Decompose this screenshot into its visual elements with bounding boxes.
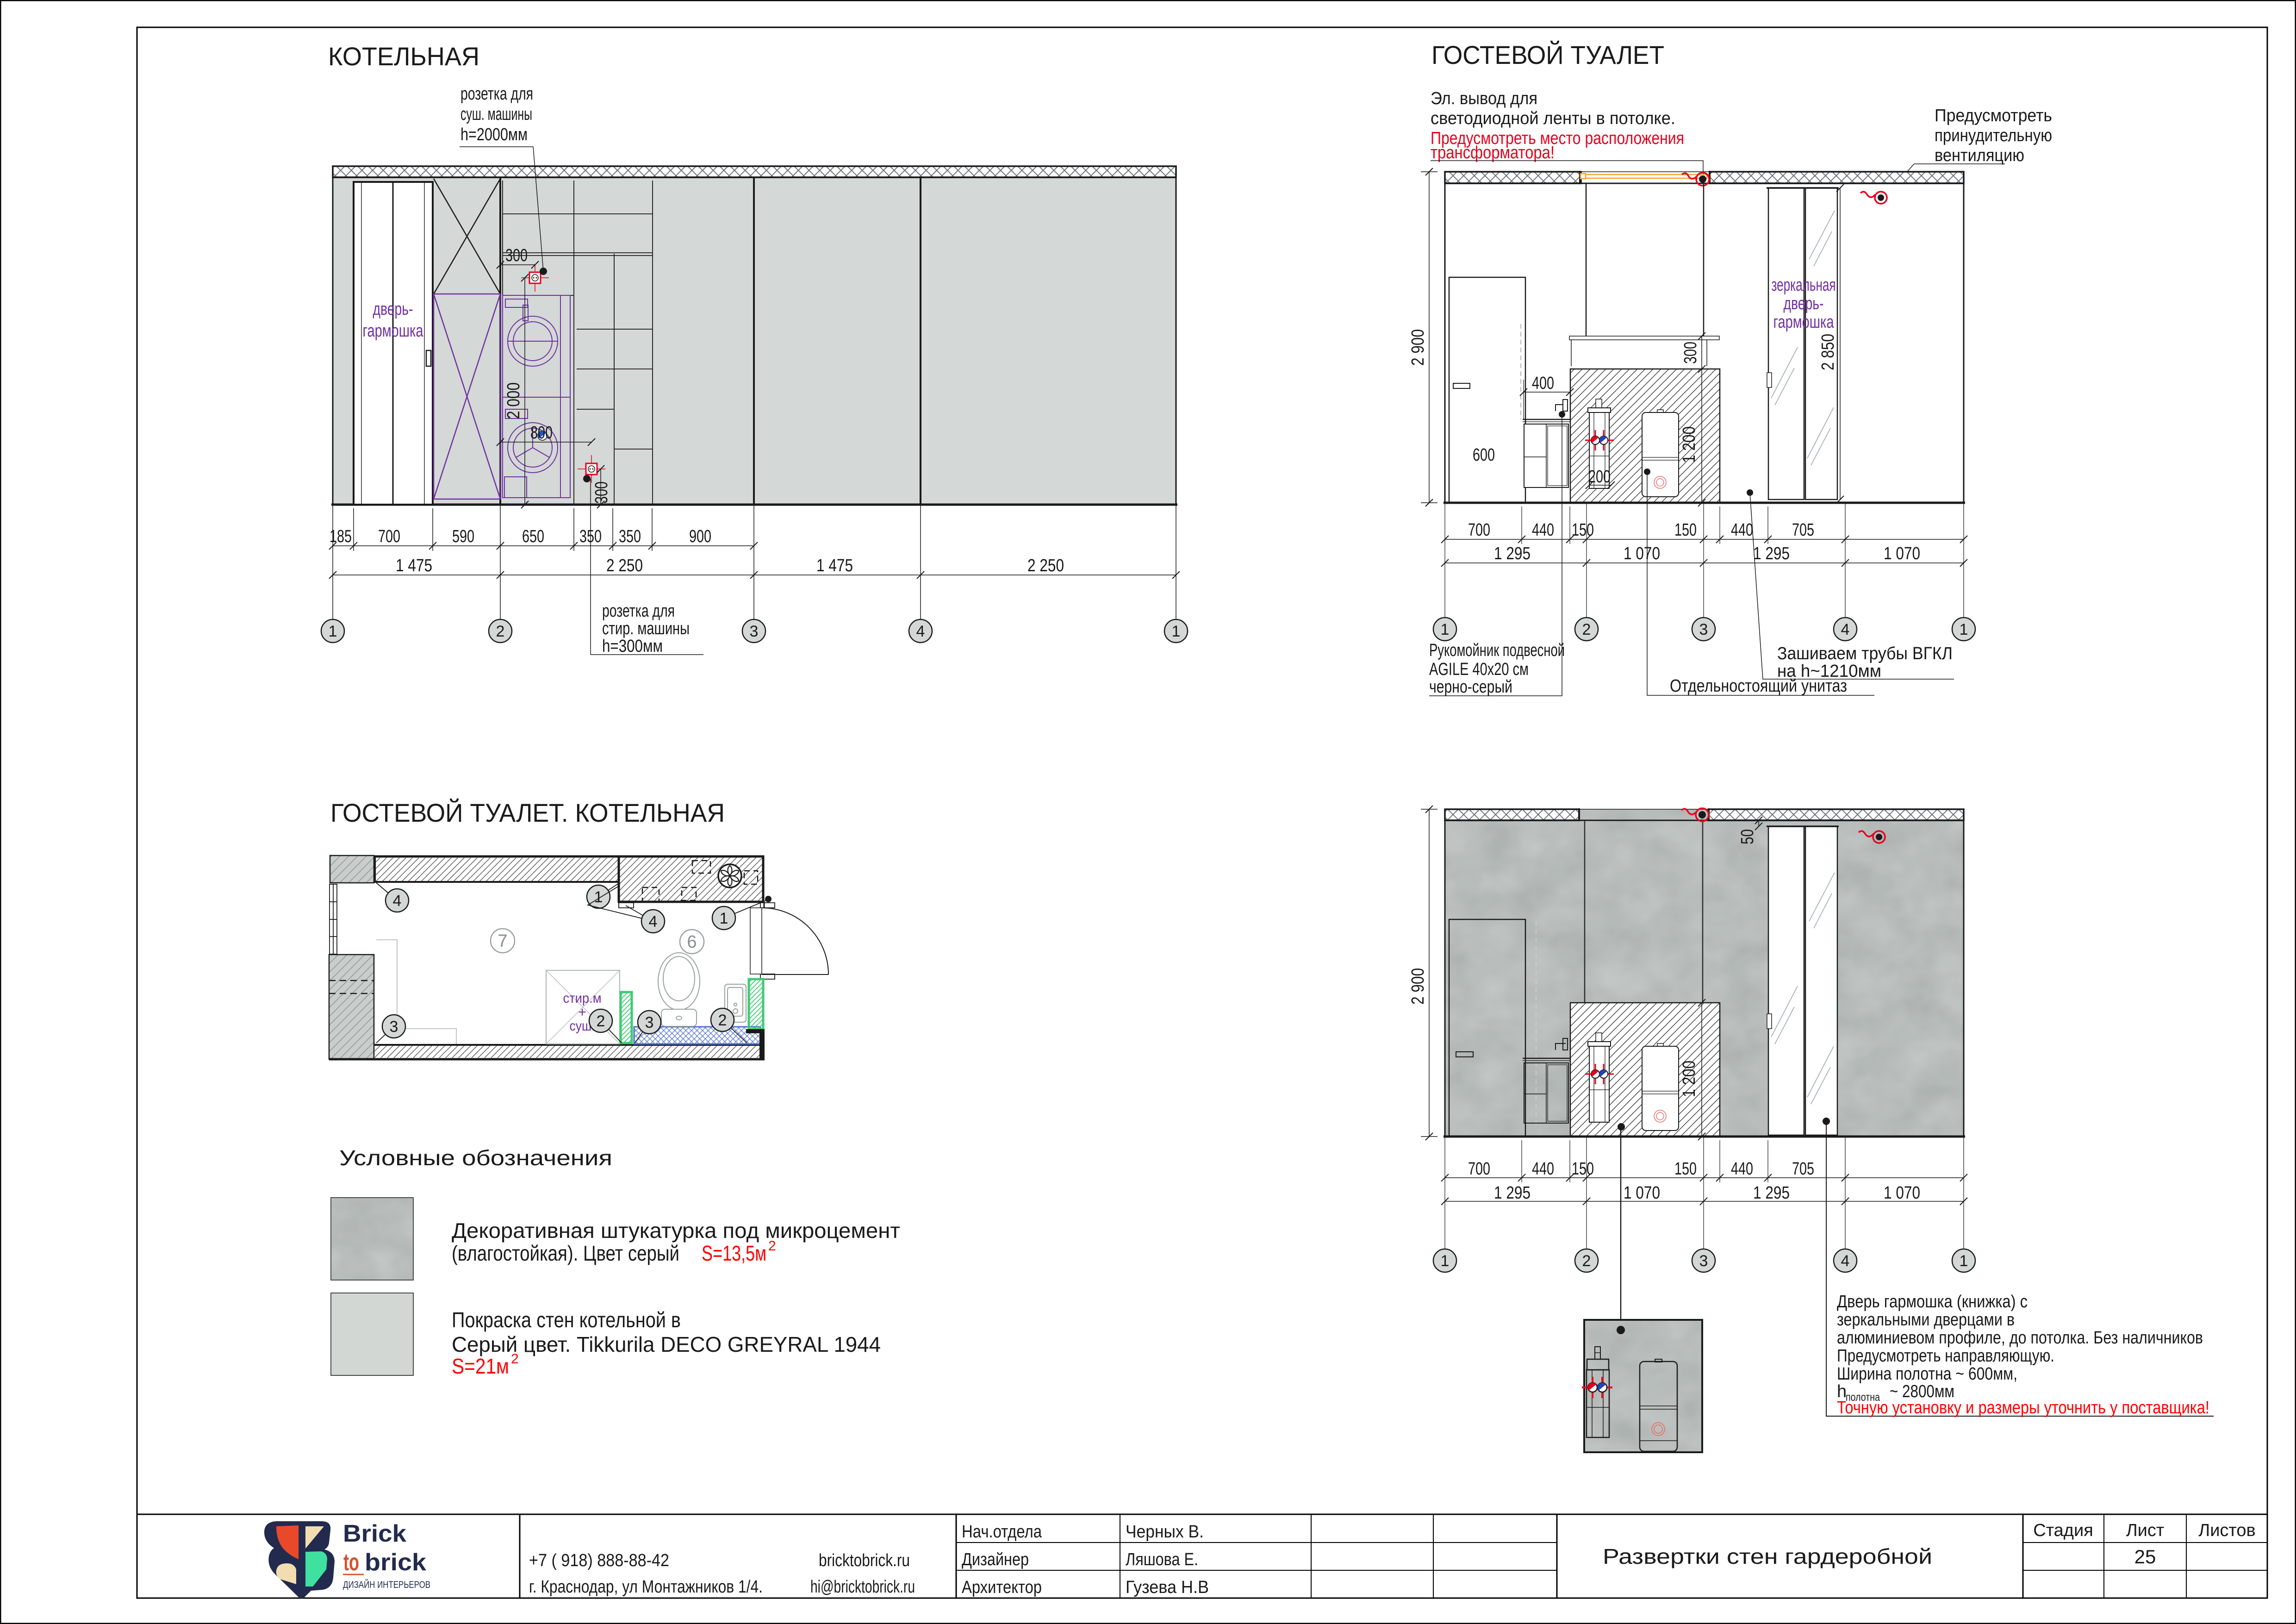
svg-text:brick: brick — [365, 1549, 426, 1576]
svg-text:S=13,5м: S=13,5м — [702, 1241, 766, 1265]
svg-text:1 070: 1 070 — [1884, 1183, 1920, 1203]
svg-text:стир. машины: стир. машины — [602, 619, 690, 638]
svg-text:Ляшова Е.: Ляшова Е. — [1126, 1550, 1198, 1569]
svg-text:590: 590 — [452, 527, 474, 546]
svg-text:to: to — [343, 1549, 359, 1576]
svg-text:Дизайнер: Дизайнер — [962, 1550, 1029, 1569]
svg-text:принудительную: принудительную — [1935, 126, 2052, 145]
svg-text:1: 1 — [1441, 1252, 1450, 1270]
svg-text:4: 4 — [1841, 1252, 1850, 1270]
svg-text:bricktobrick.ru: bricktobrick.ru — [819, 1551, 910, 1570]
svg-text:2: 2 — [511, 1351, 519, 1367]
svg-text:1: 1 — [1172, 623, 1181, 640]
svg-text:Нач.отдела: Нач.отдела — [962, 1522, 1042, 1542]
svg-text:ГОСТЕВОЙ ТУАЛЕТ. КОТЕЛЬНАЯ: ГОСТЕВОЙ ТУАЛЕТ. КОТЕЛЬНАЯ — [330, 798, 725, 827]
svg-text:150: 150 — [1572, 1159, 1594, 1179]
svg-text:+: + — [578, 1005, 586, 1020]
svg-text:150: 150 — [1674, 520, 1697, 540]
svg-text:440: 440 — [1731, 520, 1753, 540]
svg-text:700: 700 — [378, 527, 400, 546]
svg-text:1 475: 1 475 — [816, 556, 853, 575]
svg-text:2: 2 — [718, 1012, 727, 1029]
svg-text:черно-серый: черно-серый — [1429, 677, 1512, 697]
svg-text:Эл. вывод для: Эл. вывод для — [1431, 89, 1537, 108]
svg-text:7: 7 — [498, 931, 507, 951]
svg-text:2 900: 2 900 — [1408, 329, 1428, 366]
svg-text:700: 700 — [1468, 1159, 1490, 1179]
svg-text:2: 2 — [768, 1238, 776, 1254]
svg-text:900: 900 — [689, 527, 711, 546]
svg-text:h=300мм: h=300мм — [602, 637, 663, 656]
svg-text:Развертки стен гардеробной: Развертки стен гардеробной — [1603, 1544, 1932, 1568]
svg-text:гармошка: гармошка — [363, 321, 424, 341]
svg-text:350: 350 — [579, 527, 602, 546]
svg-text:1 295: 1 295 — [1494, 1183, 1531, 1203]
svg-text:2 900: 2 900 — [1408, 968, 1428, 1005]
svg-text:алюминиевом профиле, до потолк: алюминиевом профиле, до потолка. Без нал… — [1837, 1328, 2203, 1348]
svg-text:S=21м: S=21м — [452, 1354, 509, 1378]
svg-text:Зашиваем трубы ВГКЛ: Зашиваем трубы ВГКЛ — [1777, 644, 1953, 663]
svg-text:1 070: 1 070 — [1624, 544, 1660, 563]
svg-text:1: 1 — [329, 623, 337, 640]
svg-text:розетка для: розетка для — [602, 601, 675, 621]
svg-text:3: 3 — [390, 1018, 398, 1036]
svg-text:2: 2 — [1582, 621, 1591, 638]
svg-text:1: 1 — [1441, 621, 1450, 638]
svg-text:1: 1 — [1960, 1252, 1968, 1270]
svg-text:Предусмотреть: Предусмотреть — [1935, 106, 2052, 125]
svg-text:стир.м: стир.м — [563, 991, 602, 1006]
svg-text:(влагостойкая). Цвет серый: (влагостойкая). Цвет серый — [452, 1241, 679, 1265]
svg-text:Стадия: Стадия — [2033, 1521, 2093, 1540]
svg-text:440: 440 — [1532, 1159, 1554, 1179]
svg-text:на h~1210мм: на h~1210мм — [1777, 662, 1881, 681]
svg-text:ДИЗАЙН ИНТЕРЬЕРОВ: ДИЗАЙН ИНТЕРЬЕРОВ — [343, 1579, 430, 1590]
svg-text:г. Краснодар, ул Монтажников: г. Краснодар, ул Монтажников 1/4. — [529, 1577, 763, 1597]
svg-text:Гузева Н.В: Гузева Н.В — [1126, 1578, 1209, 1597]
svg-text:Листов: Листов — [2198, 1521, 2255, 1540]
svg-text:1: 1 — [594, 888, 603, 906]
svg-text:440: 440 — [1532, 520, 1554, 540]
svg-text:440: 440 — [1731, 1159, 1753, 1179]
svg-text:185: 185 — [330, 527, 352, 546]
svg-text:2 000: 2 000 — [504, 382, 523, 419]
svg-text:150: 150 — [1674, 1159, 1697, 1179]
svg-text:2: 2 — [496, 623, 505, 640]
svg-text:AGILE 40х20 см: AGILE 40х20 см — [1429, 660, 1529, 679]
svg-text:зеркальными дверцами в: зеркальными дверцами в — [1837, 1310, 2015, 1330]
svg-text:350: 350 — [619, 527, 641, 546]
svg-text:4: 4 — [916, 623, 925, 640]
svg-text:трансформатора!: трансформатора! — [1431, 143, 1555, 162]
svg-text:светодиодной ленты в потолке.: светодиодной ленты в потолке. — [1431, 109, 1675, 128]
svg-text:1: 1 — [1960, 621, 1968, 638]
svg-text:Лист: Лист — [2126, 1521, 2165, 1540]
svg-text:25: 25 — [2134, 1546, 2156, 1568]
svg-text:Дверь гармошка (книжка) с: Дверь гармошка (книжка) с — [1837, 1292, 2028, 1312]
svg-text:800: 800 — [530, 423, 553, 443]
svg-text:суш. машины: суш. машины — [460, 105, 532, 124]
svg-text:КОТЕЛЬНАЯ: КОТЕЛЬНАЯ — [328, 42, 479, 71]
svg-text:400: 400 — [1532, 374, 1554, 393]
svg-text:Черных В.: Черных В. — [1126, 1522, 1204, 1542]
svg-text:6: 6 — [687, 932, 697, 952]
svg-text:3: 3 — [1699, 621, 1708, 638]
svg-text:3: 3 — [750, 623, 759, 640]
svg-text:1 200: 1 200 — [1680, 426, 1699, 463]
svg-text:h=2000мм: h=2000мм — [460, 125, 528, 144]
svg-text:розетка для: розетка для — [460, 84, 533, 104]
svg-text:1 200: 1 200 — [1680, 1061, 1699, 1097]
svg-text:700: 700 — [1468, 520, 1490, 540]
svg-text:Декоративная штукатурка под ми: Декоративная штукатурка под микроцемент — [452, 1218, 900, 1243]
svg-text:ГОСТЕВОЙ ТУАЛЕТ: ГОСТЕВОЙ ТУАЛЕТ — [1431, 40, 1664, 69]
svg-text:650: 650 — [522, 527, 544, 546]
svg-text:4: 4 — [393, 892, 402, 910]
svg-text:1 295: 1 295 — [1753, 544, 1790, 563]
svg-text:гармошка: гармошка — [1773, 312, 1835, 332]
svg-text:600: 600 — [1473, 445, 1495, 465]
svg-text:2: 2 — [1582, 1252, 1591, 1270]
svg-text:200: 200 — [1588, 467, 1611, 487]
svg-text:Brick: Brick — [343, 1520, 406, 1547]
svg-text:300: 300 — [592, 481, 611, 504]
svg-text:2 850: 2 850 — [1818, 334, 1838, 370]
svg-text:1 070: 1 070 — [1624, 1183, 1660, 1203]
svg-text:2 250: 2 250 — [606, 556, 643, 575]
svg-text:Архитектор: Архитектор — [962, 1578, 1042, 1597]
svg-text:1 295: 1 295 — [1494, 544, 1531, 563]
svg-text:Условные обозначения: Условные обозначения — [339, 1146, 612, 1170]
svg-text:1: 1 — [720, 910, 728, 927]
svg-text:дверь-: дверь- — [373, 300, 413, 319]
svg-text:50: 50 — [1738, 829, 1757, 844]
svg-text:Покраска стен котельной в: Покраска стен котельной в — [452, 1308, 681, 1332]
svg-text:705: 705 — [1792, 1159, 1814, 1179]
svg-text:300: 300 — [1681, 342, 1700, 364]
svg-text:дверь-: дверь- — [1784, 294, 1824, 313]
svg-text:4: 4 — [1841, 621, 1850, 638]
svg-text:Предусмотреть направляющую.: Предусмотреть направляющую. — [1837, 1346, 2054, 1366]
svg-text:300: 300 — [505, 246, 528, 265]
svg-text:Точную установку и размеры уто: Точную установку и размеры уточнить у по… — [1837, 1398, 2209, 1418]
svg-text:4: 4 — [649, 913, 658, 931]
svg-text:+7 ( 918) 888-88-42: +7 ( 918) 888-88-42 — [529, 1551, 669, 1570]
svg-text:1 475: 1 475 — [396, 556, 432, 575]
svg-text:Ширина полотна ~ 600мм,: Ширина полотна ~ 600мм, — [1837, 1364, 2017, 1384]
svg-text:hi@bricktobrick.ru: hi@bricktobrick.ru — [810, 1577, 915, 1597]
svg-text:3: 3 — [645, 1014, 654, 1031]
svg-text:150: 150 — [1572, 520, 1594, 540]
svg-text:1 295: 1 295 — [1753, 1183, 1790, 1203]
svg-text:2 250: 2 250 — [1027, 556, 1064, 575]
svg-text:вентиляцию: вентиляцию — [1935, 146, 2024, 165]
svg-text:3: 3 — [1699, 1252, 1708, 1270]
svg-text:705: 705 — [1792, 520, 1814, 540]
svg-text:Рукомойник подвесной: Рукомойник подвесной — [1429, 641, 1565, 660]
svg-text:2: 2 — [597, 1012, 605, 1030]
svg-text:1 070: 1 070 — [1884, 544, 1920, 563]
svg-text:зеркальная: зеркальная — [1772, 275, 1836, 295]
